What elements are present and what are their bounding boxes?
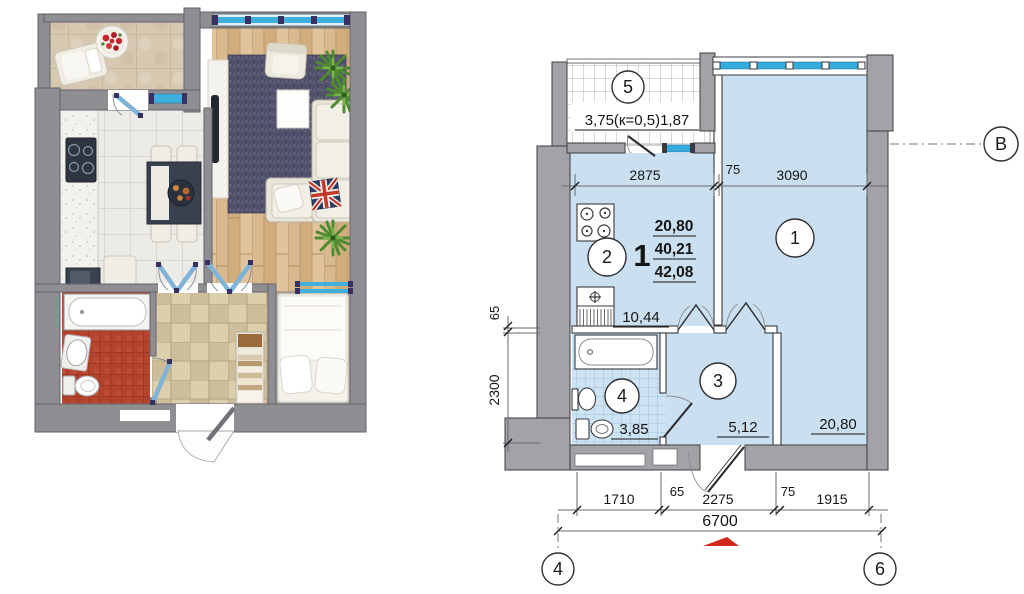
- bottom-wall-right: [745, 445, 867, 470]
- bed-pillow: [279, 355, 313, 395]
- grid-label-4: 4: [553, 559, 563, 579]
- balcony-left-pillar: [38, 14, 50, 90]
- union-jack-pillow: [309, 178, 341, 210]
- kitchen-balcony-wall-l: [567, 143, 625, 153]
- balcony-railing: [567, 59, 710, 63]
- sink-unit-icon: [577, 287, 614, 329]
- balcony-window: [149, 93, 187, 104]
- hall-bed-wall: [268, 284, 276, 406]
- double-bed: [276, 292, 352, 404]
- left-corner-block: [505, 418, 570, 470]
- stove-icon: [577, 204, 614, 241]
- washbasin: [61, 334, 91, 371]
- kitchen-living-wall: [204, 108, 212, 284]
- left-wall: [35, 88, 60, 432]
- dim-top-room1: 3090: [776, 167, 807, 183]
- hall-room1-wall: [773, 333, 781, 445]
- bath-hall-wall-tech: [660, 333, 666, 393]
- technical-floor-plan: В 4 6 1 2 3 4 5 3,75(к=0,5)1,87 1 20,80 …: [486, 53, 1018, 585]
- right-wall-tech: [867, 131, 888, 470]
- balcony-top-wall: [44, 14, 186, 22]
- flower-plate: [96, 26, 128, 58]
- toilet-icon: [576, 419, 613, 439]
- floorplan-image: В 4 6 1 2 3 4 5 3,75(к=0,5)1,87 1 20,80 …: [0, 0, 1024, 594]
- room1-window: [713, 57, 867, 75]
- dim-bottom-75: 75: [781, 484, 795, 499]
- room-number-5: 5: [623, 77, 633, 97]
- dining-table: [147, 162, 201, 224]
- dim-bottom-1915: 1915: [816, 491, 847, 507]
- potted-plant: [316, 221, 350, 255]
- stamp-living-area: 20,80: [655, 218, 694, 235]
- left-wall-tech: [537, 146, 570, 418]
- dim-left-wall: 65: [487, 306, 502, 320]
- apartment-number: 1: [633, 238, 650, 273]
- plans-svg: В 4 6 1 2 3 4 5 3,75(к=0,5)1,87 1 20,80 …: [0, 0, 1024, 594]
- stool: [104, 256, 136, 286]
- grid-label-B: В: [995, 134, 1007, 154]
- stamp-total-area: 42,08: [655, 264, 694, 281]
- grid-label-6: 6: [875, 559, 885, 579]
- kitchen-area-label: 10,44: [622, 309, 660, 326]
- room1-area-label: 20,80: [819, 416, 857, 433]
- linen-shelf: [236, 332, 264, 404]
- render-floor-plan: [35, 8, 366, 462]
- pillar-right: [867, 55, 893, 131]
- bath-area-label: 3,85: [619, 421, 648, 438]
- dim-bottom-65: 65: [670, 484, 684, 499]
- room-number-2: 2: [602, 247, 612, 267]
- stamp-area: 40,21: [655, 241, 694, 258]
- dim-bottom-1710: 1710: [603, 491, 634, 507]
- washbasin-icon: [572, 388, 596, 410]
- room-number-4: 4: [617, 386, 627, 406]
- dim-top-kitchen: 2875: [629, 167, 660, 183]
- entrance-arrow: [703, 537, 739, 546]
- cooktop: [66, 138, 96, 182]
- bath-hall-wall: [150, 292, 156, 356]
- balcony-pillar-left: [552, 62, 567, 146]
- right-wall: [350, 12, 366, 432]
- hall-area-label: 5,12: [728, 419, 757, 436]
- armchair: [265, 43, 307, 80]
- bathtub: [64, 294, 150, 330]
- living-window: [212, 14, 350, 26]
- toilet: [63, 376, 99, 396]
- room-number-3: 3: [713, 371, 723, 391]
- kitchen-balcony-wall-r: [693, 143, 715, 153]
- balcony-tech: [567, 59, 710, 145]
- dim-bottom-2275: 2275: [702, 491, 733, 507]
- bathtub-icon: [575, 335, 657, 369]
- dim-overall: 6700: [702, 513, 738, 530]
- balcony-area-label: 3,75(к=0,5)1,87: [585, 112, 690, 129]
- dim-top-wall: 75: [726, 162, 740, 177]
- bed-pillow: [314, 357, 347, 395]
- dim-left-bath: 2300: [486, 374, 502, 405]
- counter: [60, 110, 98, 292]
- room-number-1: 1: [790, 228, 800, 248]
- coffee-table: [277, 90, 309, 128]
